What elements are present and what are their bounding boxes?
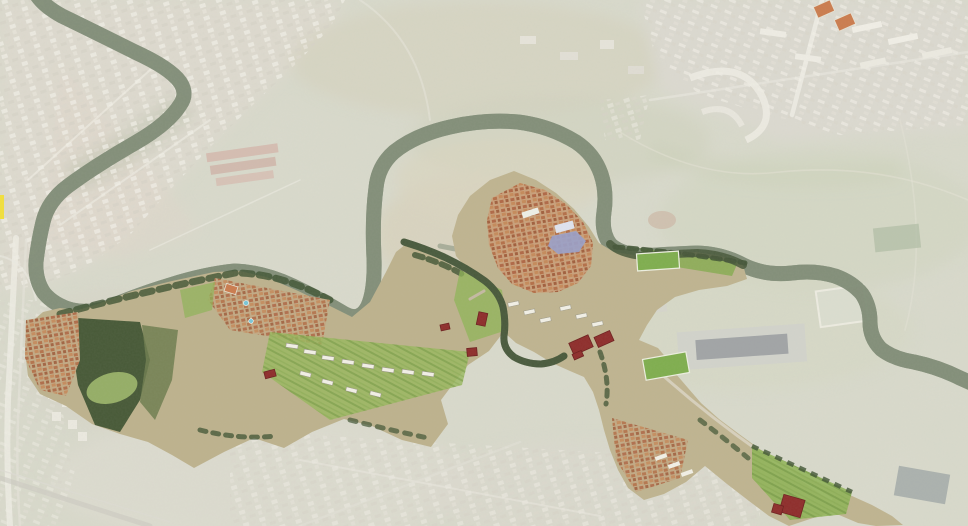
photo-grain	[0, 0, 968, 526]
map-canvas	[0, 0, 968, 526]
masterplan-map	[0, 0, 968, 526]
